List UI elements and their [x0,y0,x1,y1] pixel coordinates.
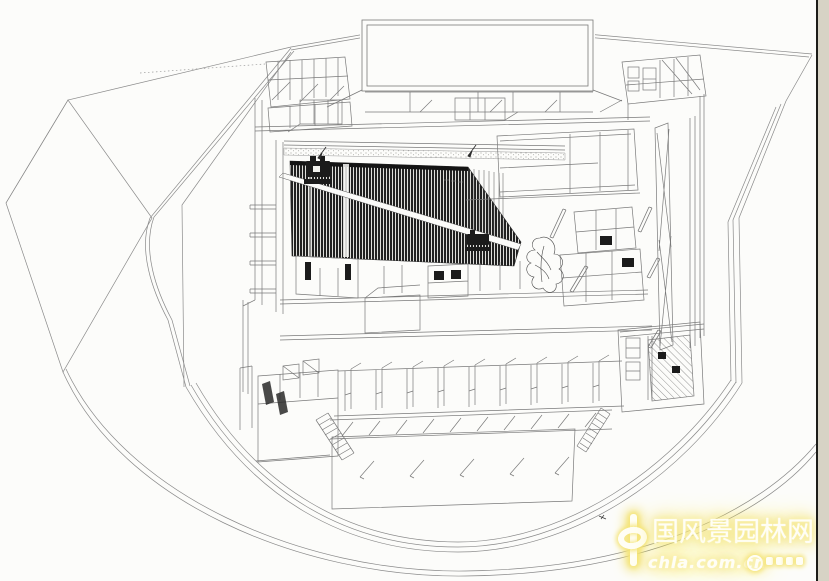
plaza [256,429,575,509]
left-room-cluster [266,57,352,132]
scanned-page: 中 国风景园林网 chla.com.cn [0,0,829,581]
scan-border-strip [818,0,829,581]
bottom-left-braces [262,381,288,415]
left-wall-ladder [243,98,283,394]
site-arc-band [63,55,816,576]
roof-panel [327,19,622,107]
right-room-cluster [600,55,706,120]
bottom-left-block [240,359,338,462]
partition-row [330,355,624,439]
tree-scribble [527,237,564,292]
projector-icon [304,156,332,184]
x-brace-wall [620,94,704,350]
stage-box [466,129,640,200]
axonometric-drawing [0,0,829,581]
lighting-bridge [284,141,565,160]
